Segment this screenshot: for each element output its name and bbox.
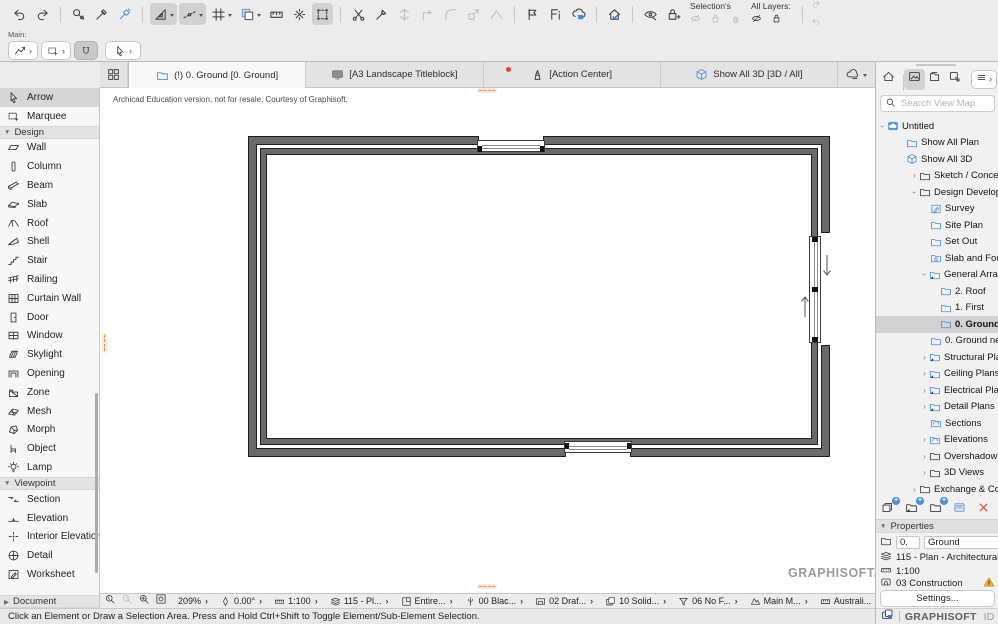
tab-label: (!) 0. Ground [0. Ground] (174, 70, 278, 81)
show-hide-elements-button[interactable] (640, 3, 661, 25)
intersect-button[interactable] (417, 3, 438, 25)
sliding-door-right[interactable] (809, 236, 821, 343)
tool-label: Beam (27, 180, 53, 191)
edit-plane-button[interactable] (312, 3, 333, 25)
tool-column[interactable]: Column (0, 157, 99, 176)
tool-slab[interactable]: Slab (0, 195, 99, 214)
view-map-search[interactable] (880, 95, 995, 112)
syringe-icon (117, 7, 132, 22)
folder-icon (880, 535, 892, 550)
tool-opening[interactable]: Opening (0, 364, 99, 383)
tree-item-label: 3D Views (944, 467, 984, 478)
quick-option-value: Australi... (834, 596, 872, 606)
scaleic-icon (274, 596, 285, 607)
quick-option-value: 06 No F... (692, 596, 731, 606)
tool-interior-elevation[interactable]: Interior Elevation (0, 528, 99, 547)
project-map-tab[interactable] (878, 69, 898, 90)
panel-menu-button[interactable]: › (971, 70, 997, 89)
zoomin-icon (138, 593, 150, 605)
tree-item-label: Slab and Foundation (945, 253, 998, 264)
door-swing-arrow-up (800, 292, 810, 318)
project-map-icon (882, 70, 895, 88)
tree-item-survey[interactable]: Survey (876, 201, 998, 218)
section-label: Design (14, 127, 44, 138)
lock-elements-button[interactable] (663, 3, 684, 25)
tree-item-show-all-3d[interactable]: Show All 3D (876, 151, 998, 168)
tree-expander-icon[interactable]: › (920, 402, 929, 411)
foldergray-icon (919, 170, 931, 182)
quick-option-structure-display[interactable]: Entire...› (401, 596, 453, 607)
tree-expander-icon[interactable]: › (920, 369, 929, 378)
tool-label: Elevation (27, 513, 68, 524)
toolbox-section-viewpoint[interactable]: ▼Viewpoint (0, 477, 99, 490)
layout-tool-button[interactable]: › (8, 41, 38, 60)
section-label: Viewpoint (14, 478, 55, 489)
layer-combination-icon (880, 550, 892, 565)
new-viewpoint-button[interactable]: + (881, 501, 896, 516)
stretch-icon (466, 7, 481, 22)
panel-drag-handle[interactable] (916, 64, 956, 66)
tree-item-label: Survey (945, 203, 975, 214)
tool-curtain-wall[interactable]: Curtain Wall (0, 289, 99, 308)
tree-item-label: General Arrangement (944, 269, 998, 280)
tree-item-detail-plans-create-d[interactable]: ›Detail Plans (create d (876, 399, 998, 416)
arrowcur-icon (7, 91, 20, 104)
tool-object[interactable]: Object (0, 439, 99, 458)
tool-label: Section (27, 494, 60, 505)
property-row-penset[interactable]: 03 Construction (876, 576, 998, 590)
toolbox-palette: ArrowMarquee▼DesignWallColumnBeamSlabRoo… (0, 88, 100, 608)
quick-option-pen-set[interactable]: 00 Blac...› (465, 596, 524, 607)
separator (899, 611, 900, 622)
tab-show-all-3d-3d-all[interactable]: Show All 3D [3D / All] (661, 62, 838, 87)
tree-item-0-ground[interactable]: 0. Ground (876, 316, 998, 333)
publisher-tab[interactable] (945, 69, 965, 90)
teamwork-icon[interactable] (881, 608, 894, 624)
hamburger-icon (976, 70, 987, 88)
tool-door[interactable]: Door (0, 308, 99, 327)
fit-in-window-button[interactable] (155, 593, 167, 608)
navigator-panel: › ›UntitledShow All PlanShow All 3D›Sket… (875, 62, 998, 624)
flag-icon (525, 7, 540, 22)
search-input[interactable] (899, 97, 989, 110)
teamwork-icon (881, 608, 894, 621)
marquee-tool-button[interactable]: › (41, 41, 71, 60)
tool-arrow[interactable]: Arrow (0, 88, 99, 107)
undo-icon (811, 17, 821, 27)
eyeslash-icon (690, 13, 701, 24)
tree-item-1-first[interactable]: 1. First (876, 300, 998, 317)
tool-label: Railing (27, 274, 58, 285)
tree-item-exchange-coordinatio[interactable]: ›Exchange & Coordinatio (876, 481, 998, 498)
zoom-forward-button[interactable] (121, 593, 133, 608)
folderblue-icon (940, 302, 952, 314)
resize-button[interactable] (463, 3, 484, 25)
tree-item-label: Untitled (902, 121, 934, 132)
tool-label: Stair (27, 255, 48, 266)
graphisoft-id-logo[interactable]: GRAPHISOFT (905, 611, 977, 623)
quick-option-value: 115 - Pl... (344, 596, 382, 606)
foldergray-icon (919, 483, 931, 495)
tab-bar: (!) 0. Ground [0. Ground][A3 Landscape T… (100, 62, 875, 88)
tab-0-ground-0-ground[interactable]: (!) 0. Ground [0. Ground] (128, 62, 306, 88)
tree-item-elevations[interactable]: ›Elevations (876, 432, 998, 449)
trace-reference-button[interactable] (237, 3, 264, 25)
notification-badge (506, 67, 511, 72)
tool-label: Worksheet (27, 569, 75, 580)
modelic-icon (750, 596, 761, 607)
monitor-icon (331, 68, 344, 81)
toolbox-scrollbar[interactable] (95, 393, 98, 573)
tree-expander-icon[interactable]: › (920, 353, 929, 362)
quad-icon (107, 68, 120, 81)
education-notice: Archicad Education version, not for resa… (113, 95, 348, 104)
box3d-icon (695, 68, 708, 81)
collapse-arrow-icon: ▼ (4, 129, 10, 136)
tool-mesh[interactable]: Mesh (0, 402, 99, 421)
view-map-actions: +++ (876, 499, 998, 517)
tool-railing[interactable]: Railing (0, 270, 99, 289)
tree-item-show-all-plan[interactable]: Show All Plan (876, 135, 998, 152)
roof-icon (7, 217, 20, 230)
delete-view-button[interactable] (977, 501, 992, 516)
tree-expander-icon[interactable]: › (910, 171, 919, 180)
guide-lines-button[interactable] (179, 3, 206, 25)
column-icon (7, 160, 20, 173)
tree-item-label: Electrical Plans (944, 385, 998, 396)
quick-option-scale[interactable]: 1:100› (274, 596, 318, 607)
properties-header[interactable]: ▼ Properties (876, 519, 998, 533)
tool-beam[interactable]: Beam (0, 176, 99, 195)
quick-option-value: 10 Solid... (619, 596, 659, 606)
tree-item-0-ground-new[interactable]: 0. Ground new (876, 333, 998, 350)
folderblue-icon (906, 137, 918, 149)
toolbox-section-design[interactable]: ▼Design (0, 126, 99, 139)
folderblue-icon (940, 285, 952, 297)
search-icon (885, 97, 896, 108)
setsquare-icon (153, 7, 168, 22)
quick-option-model-view-options[interactable]: 02 Draf...› (535, 596, 593, 607)
quick-option-value: 00 Blac... (479, 596, 517, 606)
magnet-snap-button[interactable] (74, 41, 98, 60)
shell-icon (7, 235, 20, 248)
tab-a3-landscape-titleblock[interactable]: [A3 Landscape Titleblock] (306, 62, 483, 87)
tree-item-sketch-concept[interactable]: ›Sketch / Concept (876, 168, 998, 185)
dropdown-arrow-icon[interactable] (199, 14, 203, 19)
redo-button[interactable] (32, 3, 53, 25)
quick-option-orientation[interactable]: 0.00°› (220, 596, 262, 607)
split-button[interactable] (394, 3, 415, 25)
selection-grab-button[interactable] (730, 11, 741, 29)
pickup-parameters-button[interactable] (91, 3, 112, 25)
snap-tools-button[interactable] (150, 3, 177, 25)
tree-item-label: Set Out (945, 236, 977, 247)
multiply-button[interactable] (486, 3, 507, 25)
new-folder-button[interactable]: + (929, 501, 944, 516)
tool-label: Opening (27, 368, 65, 379)
unitsic-icon (820, 596, 831, 607)
quick-option-layer-combination[interactable]: 115 - Pl...› (330, 596, 389, 607)
magnet-icon (80, 45, 92, 57)
penset-value: 03 Construction (896, 578, 963, 589)
worksheett-icon (7, 568, 20, 581)
scissors-icon (351, 7, 366, 22)
zoomfwd-icon (121, 593, 133, 605)
zoom-back-button[interactable] (104, 593, 116, 608)
sheetpencil-icon (930, 203, 942, 215)
palette-handle-left[interactable] (102, 333, 107, 353)
tree-item-slab-and-foundation[interactable]: Slab and Foundation (876, 250, 998, 267)
lock-icon (710, 13, 721, 24)
grid-snap-button[interactable] (208, 3, 235, 25)
layout-book-icon (928, 70, 941, 88)
chevron-right-icon: › (450, 596, 453, 606)
collapse-arrow-icon: ▼ (4, 480, 10, 487)
favorites-icon (548, 7, 563, 22)
check-model-button[interactable] (604, 3, 625, 25)
filteric-icon (678, 596, 689, 607)
zoomback-icon (104, 593, 116, 605)
toolbar-separator (142, 6, 143, 23)
tool-elevation[interactable]: Elevation (0, 509, 99, 528)
split-icon (397, 7, 412, 22)
morph-icon (7, 423, 20, 436)
settings-button[interactable]: Settings... (880, 590, 995, 607)
tree-item-3d-views[interactable]: ›3D Views (876, 465, 998, 482)
secondary-toolbar: Main: ››› (0, 28, 998, 62)
tool-label: Object (27, 443, 56, 454)
tool-label: Morph (27, 424, 55, 435)
window-icon (7, 329, 20, 342)
scaleic-icon (880, 564, 892, 576)
window-top[interactable] (477, 140, 545, 152)
tree-item-label: Sections (945, 418, 981, 429)
publisher-icon (948, 70, 961, 83)
tree-item-label: Design Development (934, 187, 998, 198)
tab-action-center[interactable]: [Action Center] (484, 62, 661, 87)
tree-item-structural-plans[interactable]: ›Structural Plans (876, 349, 998, 366)
folderclone-icon (929, 269, 941, 281)
selection-lock-button[interactable] (710, 11, 721, 29)
palette-handle-top[interactable] (477, 88, 497, 93)
box3d-icon (906, 153, 918, 165)
chevron-right-icon: › (315, 596, 318, 606)
tree-expander-icon[interactable]: › (920, 452, 929, 461)
property-row-name (876, 535, 998, 549)
tree-item-2-roof[interactable]: 2. Roof (876, 283, 998, 300)
tool-roof[interactable]: Roof (0, 214, 99, 233)
all-layers-hide-button[interactable] (751, 11, 762, 29)
dropdown-arrow-icon[interactable] (170, 14, 174, 19)
folderarc-icon (930, 417, 942, 429)
toolbar-separator (60, 6, 61, 23)
tool-label: Curtain Wall (27, 293, 81, 304)
tool-skylight[interactable]: Skylight (0, 345, 99, 364)
lockadd-icon (666, 7, 681, 22)
panel-footer: GRAPHISOFT ID (876, 608, 998, 624)
tree-expander-icon[interactable]: › (920, 468, 929, 477)
quick-option-graphic-override[interactable]: 06 No F...› (678, 596, 738, 607)
all-layers-lock-button[interactable] (771, 11, 782, 29)
wall-opening (821, 232, 830, 346)
tab-label: [Action Center] (549, 69, 612, 80)
tree-expander-icon[interactable]: › (910, 188, 919, 197)
quick-option-working-units[interactable]: Australi...› (820, 596, 875, 607)
tree-item-electrical-plans[interactable]: ›Electrical Plans (876, 382, 998, 399)
favorites-button[interactable] (545, 3, 566, 25)
railing-icon (7, 273, 20, 286)
tree-expander-icon[interactable]: › (920, 270, 929, 279)
slab-icon (7, 198, 20, 211)
quick-option-renovation-filter[interactable]: 10 Solid...› (605, 596, 666, 607)
layersic-icon (330, 596, 341, 607)
tree-expander-icon[interactable]: › (920, 435, 929, 444)
tool-label: Column (27, 161, 61, 172)
folderblue-icon (930, 335, 942, 347)
group-label: Selection's (690, 1, 731, 11)
new-clone-folder-button[interactable]: + (905, 501, 920, 516)
zoom-tools (104, 593, 167, 608)
view-name-field[interactable] (924, 536, 998, 549)
markup-flag-button[interactable] (522, 3, 543, 25)
selections-group: Selection's (690, 1, 741, 27)
tab-label: [A3 Landscape Titleblock] (349, 69, 457, 80)
tool-shell[interactable]: Shell (0, 233, 99, 252)
chevron-right-icon: › (205, 596, 208, 606)
main-label: Main: (8, 30, 26, 39)
tree-item-label: Sketch / Concept (934, 170, 998, 181)
tool-label: Wall (27, 142, 46, 153)
tool-label: Slab (27, 199, 47, 210)
pick-parameters-button[interactable] (68, 3, 89, 25)
undo-button[interactable] (9, 3, 30, 25)
tool-stair[interactable]: Stair (0, 251, 99, 270)
top-toolbar: Selection'sAll Layers: (0, 0, 998, 28)
quick-option-value: Main M... (764, 596, 801, 606)
dimension-button[interactable] (266, 3, 287, 25)
chevron-right-icon: › (520, 596, 523, 606)
tool-wall[interactable]: Wall (0, 139, 99, 158)
tree-item-design-development[interactable]: ›Design Development (876, 184, 998, 201)
view-id-field[interactable] (896, 536, 920, 549)
penu-icon (465, 596, 476, 607)
tool-morph[interactable]: Morph (0, 421, 99, 440)
explode-button[interactable] (289, 3, 310, 25)
layout-book-tab[interactable] (925, 69, 945, 90)
properties-label: Properties (890, 521, 933, 532)
palette-handle-bottom[interactable] (477, 584, 497, 589)
guides-icon (182, 7, 197, 22)
plus-badge-icon: + (916, 497, 924, 505)
beam-icon (7, 179, 20, 192)
tree-expander-icon[interactable]: › (910, 485, 919, 494)
tree-item-label: Show All Plan (921, 137, 979, 148)
renoic-icon (605, 596, 616, 607)
tool-detail[interactable]: Detail (0, 546, 99, 565)
redo-alt-button[interactable] (811, 0, 821, 14)
tree-expander-icon[interactable]: › (920, 386, 929, 395)
tree-item-sections[interactable]: Sections (876, 415, 998, 432)
chevron-right-icon: › (590, 596, 593, 606)
tree-item-untitled[interactable]: ›Untitled (876, 118, 998, 135)
tree-item-site-plan[interactable]: Site Plan (876, 217, 998, 234)
tool-worksheet[interactable]: Worksheet (0, 565, 99, 584)
toolbox-document-anchor (0, 593, 100, 608)
orient-icon (220, 596, 231, 607)
redo-icon (811, 0, 821, 9)
skylight-icon (7, 348, 20, 361)
polyarrow-icon (14, 45, 26, 57)
tool-label: Interior Elevation (27, 531, 100, 542)
floor-plan[interactable] (248, 136, 830, 457)
selection-hide-button[interactable] (690, 11, 701, 29)
drawing-canvas[interactable]: Archicad Education version, not for resa… (100, 88, 875, 593)
quick-option-value: 209% (178, 596, 201, 606)
toolbox-rows: ArrowMarquee▼DesignWallColumnBeamSlabRoo… (0, 88, 99, 584)
tree-item-general-arrangement[interactable]: ›General Arrangement (876, 267, 998, 284)
foldercam-icon (930, 252, 942, 264)
view-map-icon (908, 70, 921, 88)
tool-section[interactable]: Section (0, 490, 99, 509)
penic-icon (880, 576, 892, 588)
tool-label: Detail (27, 550, 53, 561)
tool-marquee[interactable]: Marquee (0, 107, 99, 126)
tool-zone[interactable]: Zone (0, 383, 99, 402)
tree-item-label: Site Plan (945, 220, 983, 231)
chevron-right-icon: › (259, 596, 262, 606)
folderplain-icon (880, 535, 892, 547)
group-label: All Layers: (751, 1, 791, 11)
tool-window[interactable]: Window (0, 327, 99, 346)
fillet-button[interactable] (440, 3, 461, 25)
tab-overview-button[interactable] (100, 62, 128, 87)
cloudtree-icon (887, 120, 899, 132)
quick-options-bar: 209%›0.00°›1:100›115 - Pl...›Entire...›0… (100, 593, 875, 608)
dim-icon (269, 7, 284, 22)
quick-option-partial-structure[interactable]: Main M...› (750, 596, 808, 607)
chevron-right-icon: › (989, 74, 992, 84)
trim-button[interactable] (348, 3, 369, 25)
property-row-layer[interactable]: 115 - Plan - Architectural (876, 550, 998, 564)
zoom-increase-button[interactable] (138, 593, 150, 608)
dropdown-arrow-icon[interactable] (257, 14, 261, 19)
plus-badge-icon: + (940, 497, 948, 505)
tree-item-set-out[interactable]: Set Out (876, 234, 998, 251)
collapse-arrow-icon: ▼ (880, 523, 886, 530)
tool-label: Shell (27, 236, 49, 247)
tree-expander-icon[interactable]: › (878, 122, 887, 131)
eyearrow-icon (643, 7, 658, 22)
dropdown-arrow-icon[interactable] (228, 14, 232, 19)
quick-option-zoom-level[interactable]: 209%› (178, 596, 208, 606)
view-map-tab[interactable] (904, 69, 924, 90)
adjust-button[interactable] (371, 3, 392, 25)
cloud-save-button[interactable] (568, 3, 589, 25)
cloud-menu-button[interactable] (838, 62, 875, 87)
view-settings-button[interactable] (953, 501, 968, 516)
inject-parameters-button[interactable] (114, 3, 135, 25)
inner-wall-inner-edge (266, 154, 812, 439)
arrow-tool-button[interactable]: › (105, 41, 141, 60)
tree-item-overshadowing-plans[interactable]: ›Overshadowing Plans (876, 448, 998, 465)
window-bottom[interactable] (564, 441, 632, 453)
lighthouse-icon (531, 68, 544, 81)
lamp-icon (7, 461, 20, 474)
viewimg-icon (908, 70, 921, 83)
tree-item-ceiling-plans[interactable]: ›Ceiling Plans (876, 366, 998, 383)
explode-icon (292, 7, 307, 22)
tool-lamp[interactable]: Lamp (0, 458, 99, 477)
